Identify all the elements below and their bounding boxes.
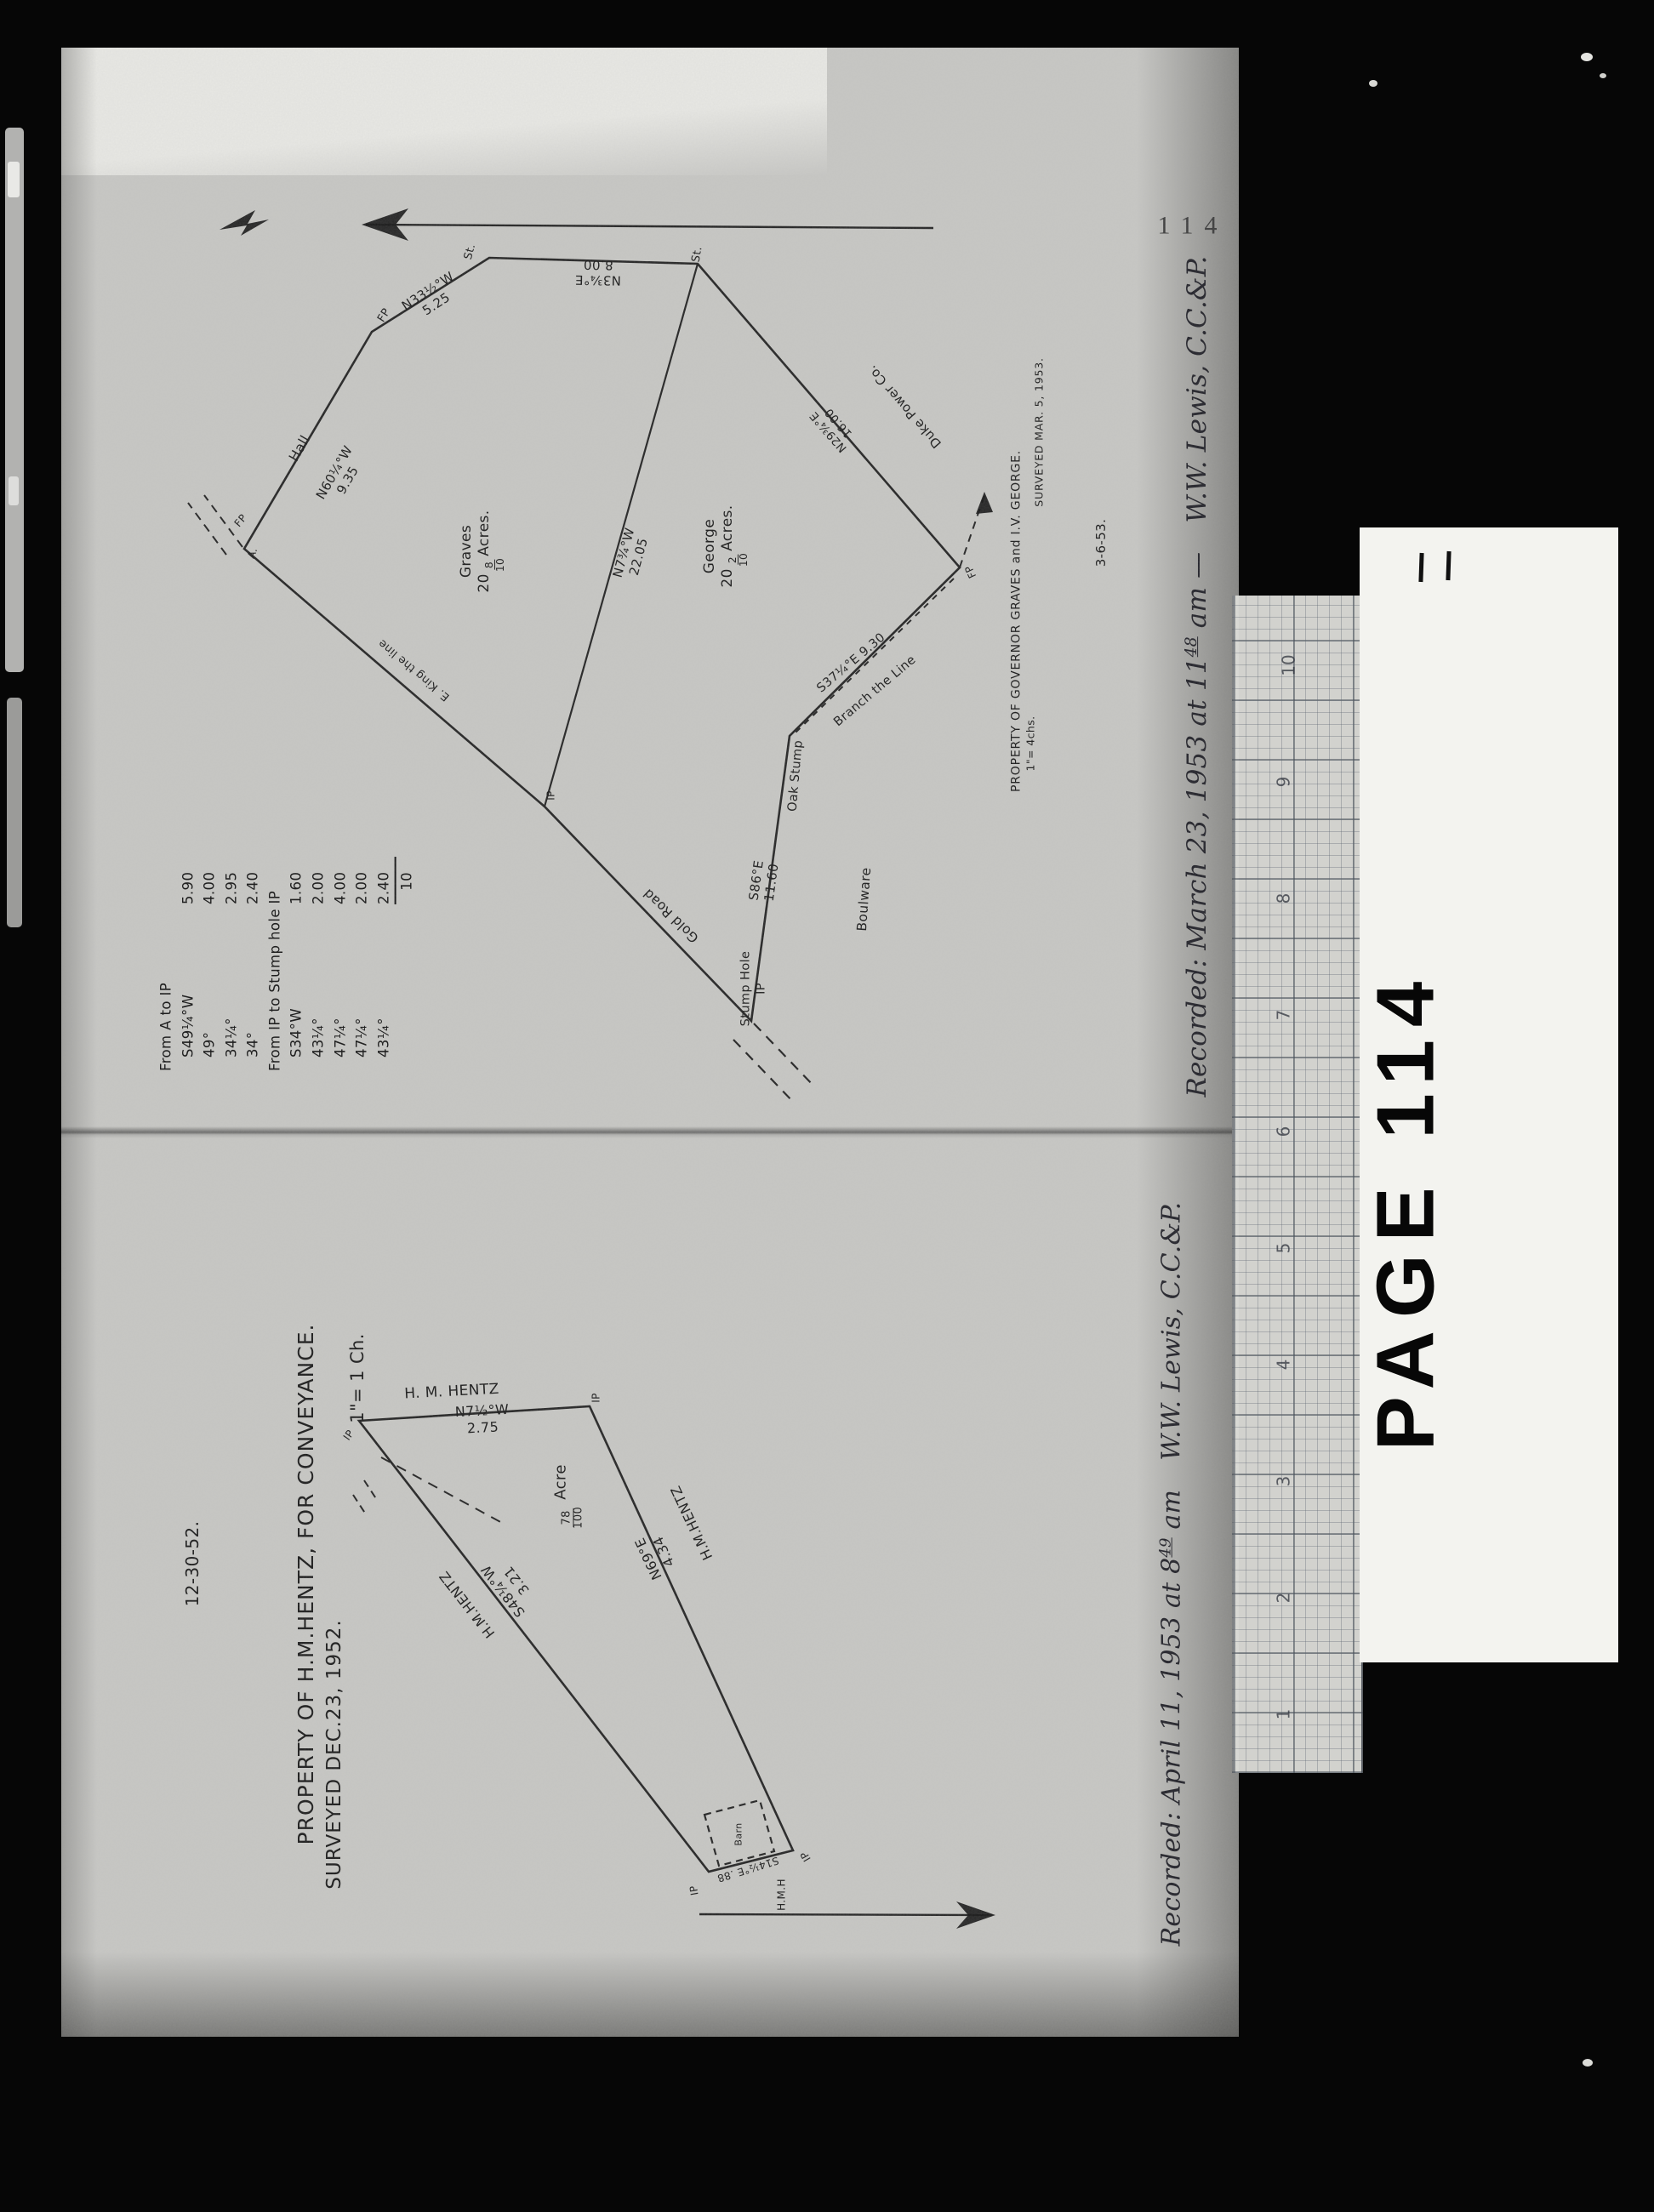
ruler-number: 3 xyxy=(1273,1476,1293,1487)
ruler-number: 9 xyxy=(1273,777,1293,788)
table-row: 47¼°2.00 xyxy=(351,857,374,1071)
table-header: From IP to Stump hole IP xyxy=(264,857,286,1071)
corner-a-dash-2 xyxy=(188,503,226,555)
ruler-number: 2 xyxy=(1273,1593,1293,1604)
survey-table: From A to IP S49¼°W5.90 49°4.00 34¼°2.95… xyxy=(156,857,419,1071)
owner-name: Graves xyxy=(458,510,476,592)
acreage: 20810Acres. xyxy=(476,510,505,592)
ruler-number: 10 xyxy=(1279,654,1299,676)
ruler-overlay: 10 9 8 7 6 5 4 3 2 1 xyxy=(1232,596,1363,1773)
branch-meander-dashes xyxy=(795,579,954,733)
recorder-signature: W.W. Lewis, C.C.&P. xyxy=(1182,255,1212,522)
duke-arrow-head xyxy=(976,492,993,514)
recorded-am: am xyxy=(1157,1490,1187,1537)
bottom-recorded-line: Recorded: April 11, 1953 at 849 amW.W. L… xyxy=(1157,1202,1189,1947)
bottom-plat-title: PROPERTY OF H.M.HENTZ, FOR CONVEYANCE. xyxy=(294,1324,320,1845)
parcel-label-george: George 20210Acres. xyxy=(701,505,749,587)
ruler-number: 6 xyxy=(1273,1126,1293,1137)
w1-tick-1 xyxy=(364,1480,377,1500)
north-arrow-fletch xyxy=(220,210,269,236)
top-surveyed-date: SURVEYED MAR. 5, 1953. xyxy=(1032,357,1045,506)
bearing-cd: N3¾°E8.00 xyxy=(575,256,622,288)
table-header: From A to IP xyxy=(156,857,178,1071)
recorded-minutes: 49 xyxy=(1157,1537,1175,1557)
bottom-scale-note: 1"= 1 Ch. xyxy=(347,1333,369,1423)
w1-tick-2 xyxy=(353,1495,366,1514)
south-arrow-line xyxy=(699,1914,992,1915)
recorder-signature: W.W. Lewis, C.C.&P. xyxy=(1157,1202,1187,1461)
corner-d-st: St. xyxy=(690,245,706,263)
corner-h-ip: IP xyxy=(545,790,558,801)
corner-stump-hole: Stump Hole IP xyxy=(739,951,768,1027)
ruler-number: 8 xyxy=(1273,893,1293,904)
ruler-number: 4 xyxy=(1273,1360,1293,1371)
acreage-hentz: 78100 Acre xyxy=(551,1464,585,1531)
table-row: S49¼°W5.90 xyxy=(177,857,199,1071)
table-row: 34°2.40 xyxy=(242,857,265,1071)
owner-name: George xyxy=(701,505,719,587)
page-number-stamp: 114 xyxy=(1158,211,1229,242)
top-scale-note: 1"= 4chs. xyxy=(1024,716,1036,772)
recorded-am: am — xyxy=(1182,552,1212,637)
top-recorded-line: Recorded: March 23, 1953 at 1148 am —W.W… xyxy=(1182,255,1214,1097)
table-row: 49°4.00 xyxy=(199,857,221,1071)
recorded-minutes: 48 xyxy=(1183,636,1201,657)
north-arrow-line xyxy=(366,225,933,228)
ruler-number: 1 xyxy=(1273,1709,1293,1720)
bearing-fg: S86°E11.60 xyxy=(746,859,783,904)
w1-dashes xyxy=(381,1457,504,1524)
recorded-text: Recorded: March 23, 1953 at 11 xyxy=(1182,657,1212,1097)
table-row: 43¼°2.40 xyxy=(373,857,396,1071)
road-dash-1 xyxy=(754,1023,815,1087)
card-mark xyxy=(1446,551,1451,580)
corner-w2-ip: IP xyxy=(590,1393,603,1403)
bearing-hentz-top: N7½°W2.75 xyxy=(454,1401,510,1437)
table-row: 34¼°2.95 xyxy=(220,857,242,1071)
adjoiner-hmh: H.M.H xyxy=(776,1878,789,1911)
card-mark xyxy=(1418,553,1423,582)
table-row: S34°W1.60 xyxy=(286,857,308,1071)
ruler-number: 7 xyxy=(1273,1010,1293,1021)
parcel-label-graves: Graves 20810Acres. xyxy=(458,510,505,592)
table-row: 47¼°4.00 xyxy=(329,857,351,1071)
page-card-label: PAGE 114 xyxy=(1355,969,1455,1451)
top-plat-title: PROPERTY OF GOVERNOR GRAVES and I.V. GEO… xyxy=(1009,450,1024,792)
building-label: Barn xyxy=(733,1822,744,1845)
top-filed-date: 3-6-53. xyxy=(1093,519,1109,567)
table-row: 43¼°2.00 xyxy=(308,857,330,1071)
ruler-number: 5 xyxy=(1273,1243,1293,1254)
bottom-filed-date: 12-30-52. xyxy=(182,1521,202,1607)
table-total: 10 xyxy=(396,857,419,1071)
bottom-surveyed-date: SURVEYED DEC.23, 1952. xyxy=(322,1619,346,1889)
road-dash-2 xyxy=(733,1040,795,1103)
acreage: 20210Acres. xyxy=(719,505,749,587)
recorded-text: Recorded: April 11, 1953 at 8 xyxy=(1157,1558,1187,1947)
scan-photo: 114 Recorded: March 23, 1953 at 1148 am … xyxy=(0,0,1654,2212)
